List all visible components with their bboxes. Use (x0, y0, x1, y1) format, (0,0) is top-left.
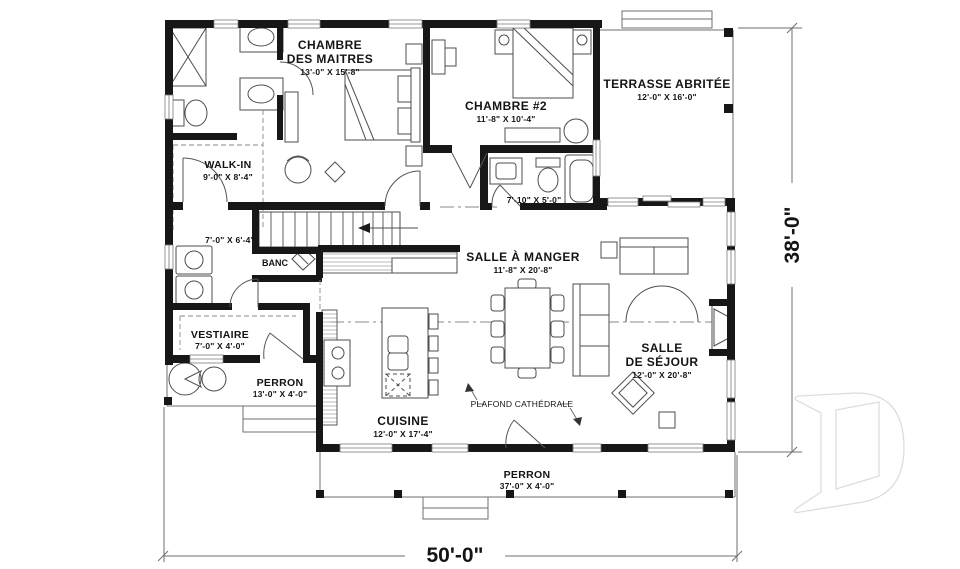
label-chambre2-dims: 11'-8" X 10'-4" (476, 114, 535, 124)
label-walkin-dims: 9'-0" X 8'-4" (203, 172, 253, 182)
staircase (259, 212, 418, 247)
laundry-units (176, 246, 212, 304)
label-vestiaire-dims: 7'-0" X 4'-0" (195, 341, 245, 351)
label-cuisine: CUISINE (377, 414, 428, 428)
label-master-line1: CHAMBRE (298, 38, 362, 52)
label-sejour-line1: SALLE (641, 341, 682, 355)
floor-plan-canvas: CHAMBRE DES MAITRES 13'-0" X 15'-8" CHAM… (0, 0, 960, 569)
ensuite-fixtures (170, 22, 283, 126)
label-sejour-dims: 12'-0" X 20'-8" (632, 370, 692, 380)
label-chambre2: CHAMBRE #2 (465, 99, 547, 113)
floor-plan-page: CHAMBRE DES MAITRES 13'-0" X 15'-8" CHAM… (0, 0, 960, 569)
label-terrasse: TERRASSE ABRITÉE (603, 76, 730, 91)
label-master-line2: DES MAITRES (287, 52, 373, 66)
label-perron-gauche-dims: 13'-0" X 4'-0" (253, 389, 308, 399)
sejour-furniture (573, 238, 698, 428)
label-salle-a-manger: SALLE À MANGER (466, 249, 580, 264)
label-plafond-cathedrale: PLAFOND CATHÉDRALE (471, 399, 574, 409)
dimension-depth: 38'-0" (781, 207, 804, 264)
label-terrasse-dims: 12'-0" X 16'-0" (637, 92, 697, 102)
dimension-width: 50'-0" (427, 544, 484, 567)
label-master-dims: 13'-0" X 15'-8" (300, 67, 360, 77)
label-perron-gauche: PERRON (257, 377, 304, 389)
label-sejour-line2: DE SÉJOUR (626, 354, 699, 369)
drummond-d-watermark-logo (795, 393, 904, 513)
dining-table-set (491, 279, 564, 378)
label-cuisine-dims: 12'-0" X 17'-4" (373, 429, 433, 439)
porch-chairs (169, 363, 226, 395)
terrasse-outline (600, 11, 733, 202)
chambre2-furniture (432, 28, 591, 143)
label-perron-avant-dims: 37'-0" X 4'-0" (500, 481, 555, 491)
label-perron-avant: PERRON (504, 469, 551, 481)
label-salle-a-manger-dims: 11'-8" X 20'-8" (493, 265, 552, 275)
stove (324, 340, 350, 386)
label-bain-dims: 7'-10" X 5'-0" (507, 195, 562, 205)
label-banc: BANC (262, 258, 288, 268)
kitchen-island (382, 308, 438, 398)
label-walkin: WALK-IN (204, 159, 251, 171)
label-vestiaire: VESTIAIRE (191, 329, 249, 341)
label-hall-dims: 7'-0" X 6'-4" (205, 235, 255, 245)
